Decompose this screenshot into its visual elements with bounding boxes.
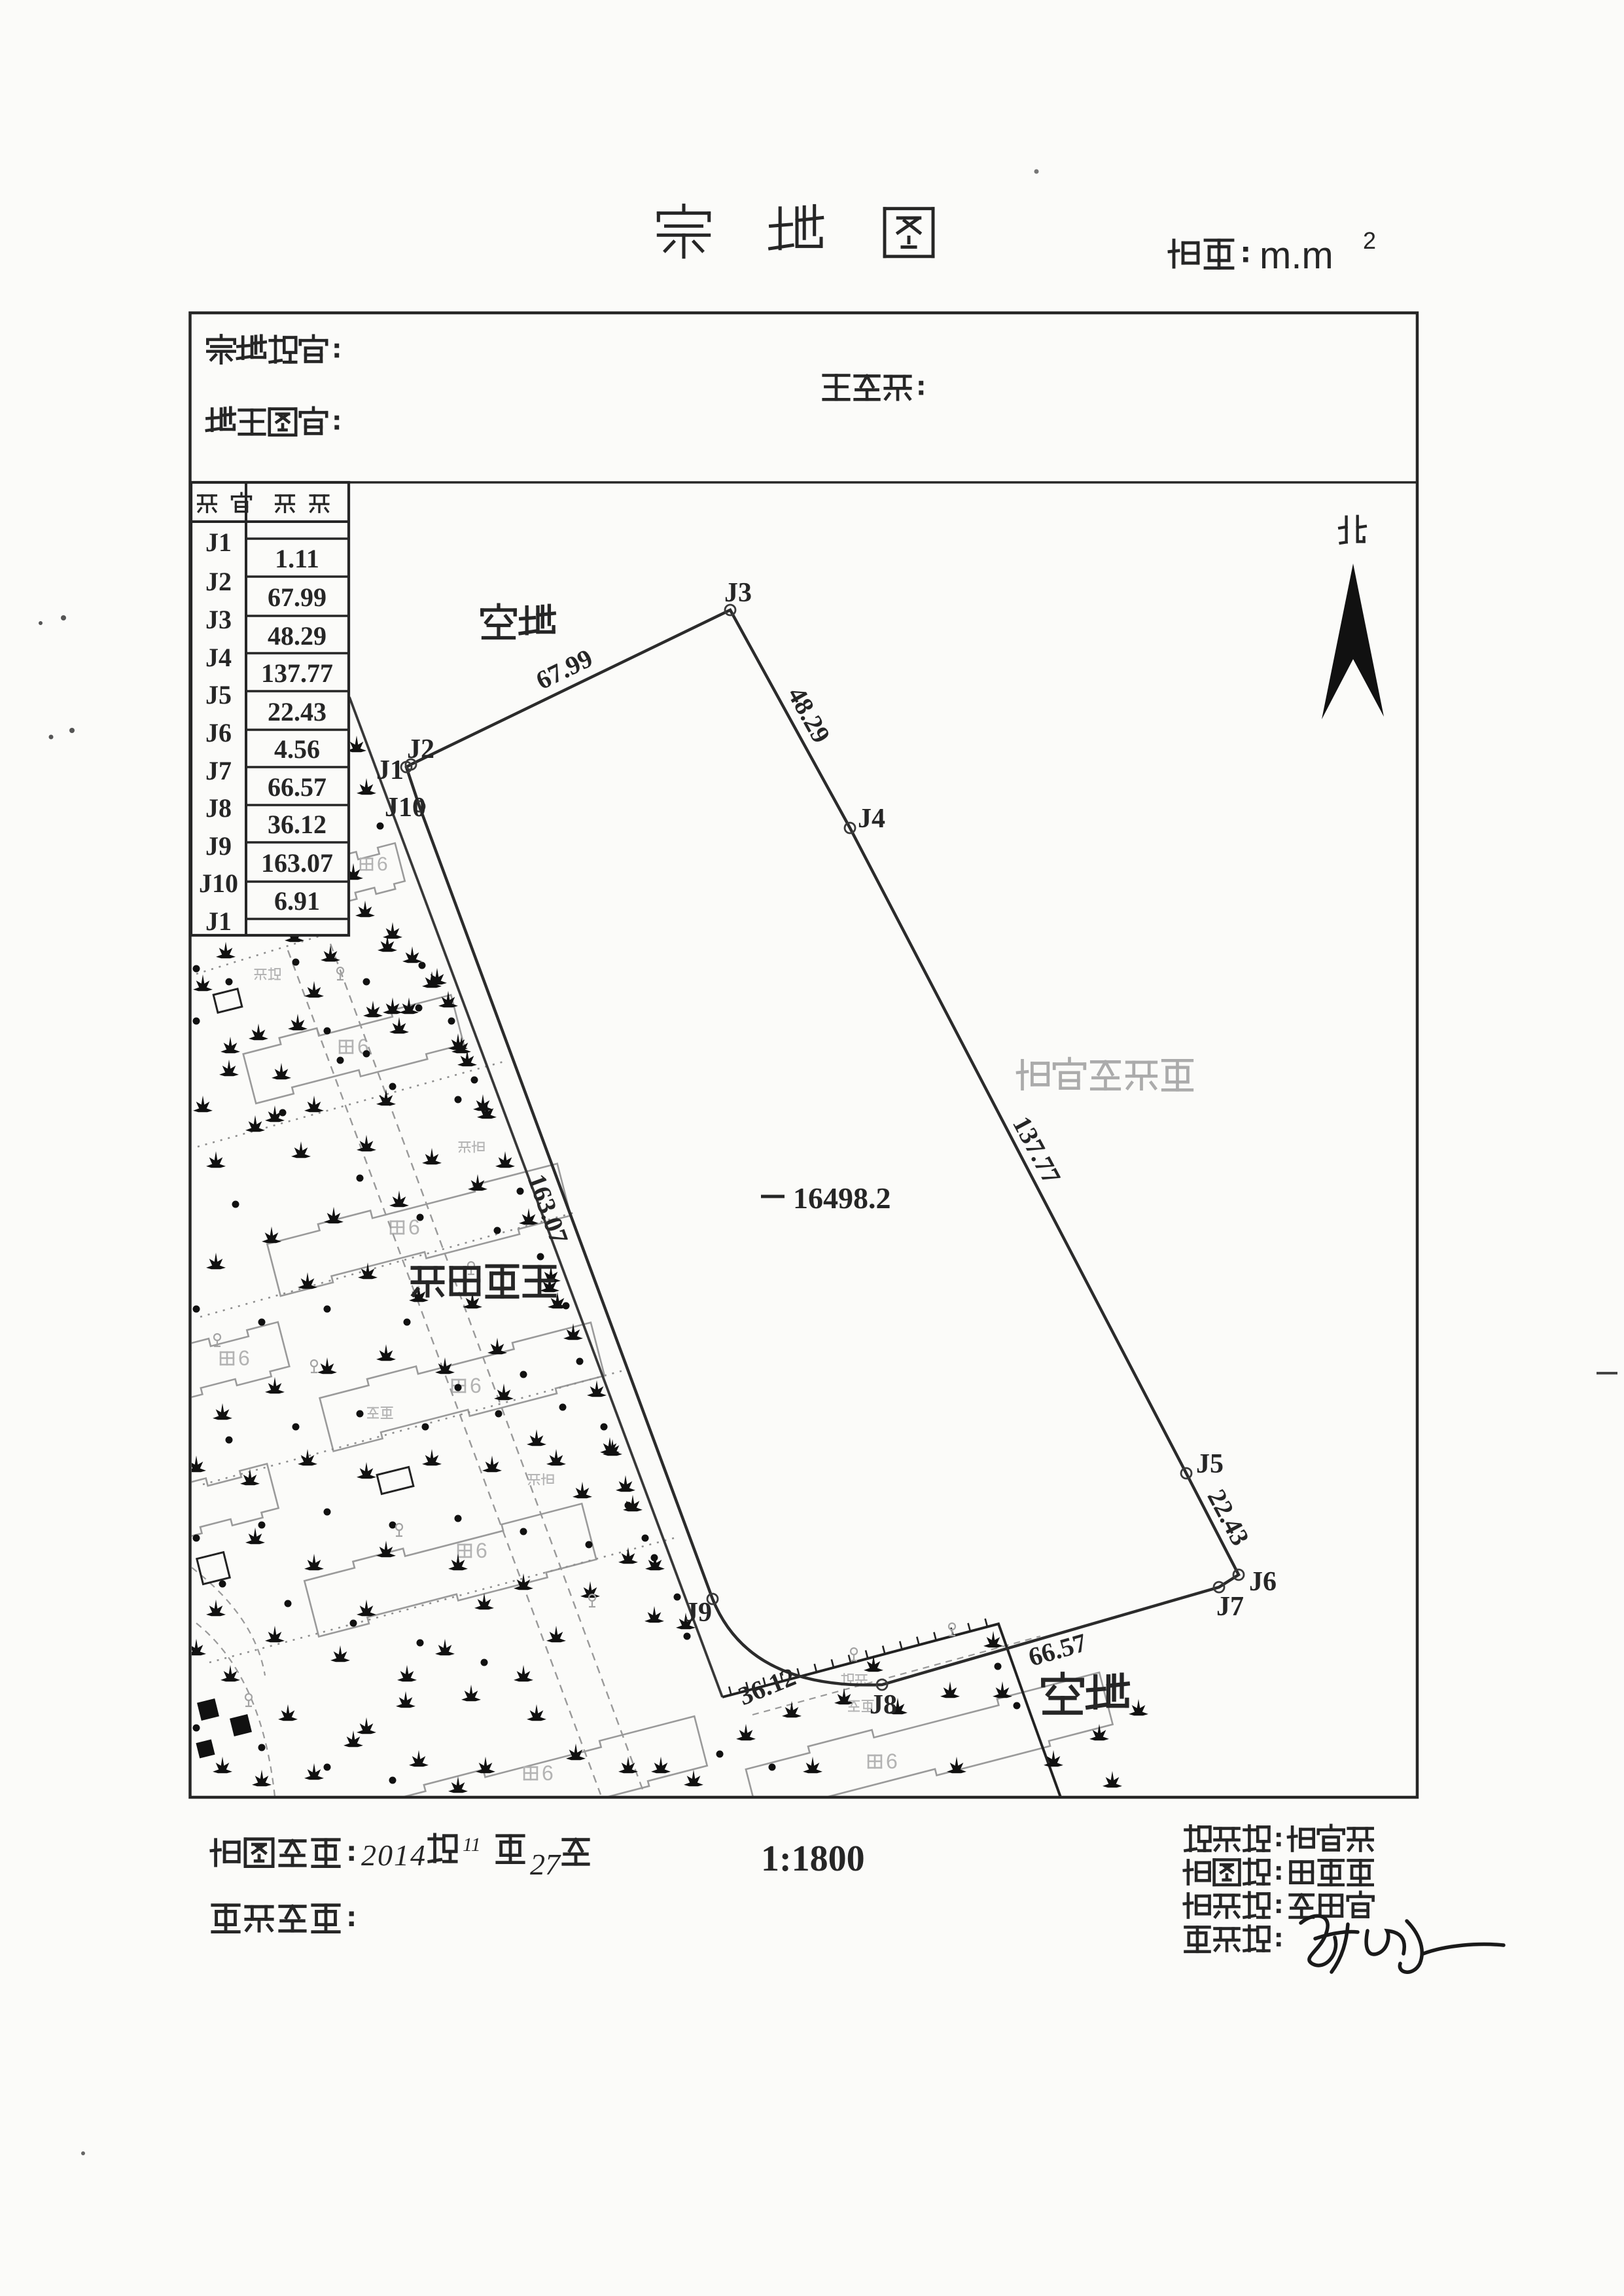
svg-text:6: 6 [476,1539,487,1562]
svg-text:6: 6 [886,1749,898,1773]
svg-text:J8: J8 [205,793,232,823]
svg-text:J1: J1 [205,906,232,936]
svg-text:J3: J3 [724,578,752,608]
svg-text:22.43: 22.43 [268,697,327,726]
svg-text:6: 6 [470,1374,482,1397]
svg-text:36.12: 36.12 [268,810,327,839]
svg-text:J6: J6 [205,718,232,747]
svg-text:J4: J4 [858,804,885,834]
svg-text:11: 11 [463,1834,481,1856]
svg-text:163.07: 163.07 [261,848,333,878]
svg-text:137.77: 137.77 [261,658,333,688]
svg-text:J2: J2 [407,734,434,764]
svg-text:J4: J4 [205,643,232,672]
svg-text:J8: J8 [870,1690,897,1720]
svg-text:2014: 2014 [361,1839,427,1872]
svg-text:J10: J10 [385,793,426,823]
svg-text:66.57: 66.57 [268,772,327,802]
svg-text:J5: J5 [1196,1449,1224,1479]
svg-text:J7: J7 [205,756,232,785]
svg-text:1.11: 1.11 [275,544,319,573]
svg-text:48.29: 48.29 [268,621,327,651]
svg-text:J1: J1 [376,755,404,785]
svg-text:J5: J5 [205,680,232,709]
svg-text:m.m: m.m [1260,234,1333,277]
svg-text:2: 2 [1363,227,1376,254]
svg-text:6: 6 [238,1346,250,1370]
svg-text:6: 6 [542,1761,554,1785]
svg-text:J6: J6 [1249,1567,1277,1597]
svg-text:27: 27 [530,1848,561,1881]
svg-text:67.99: 67.99 [268,583,327,612]
svg-text:J1: J1 [205,528,232,557]
svg-text:J9: J9 [684,1598,712,1628]
svg-text:J3: J3 [205,605,232,634]
svg-text:J2: J2 [205,567,232,596]
svg-text:1:1800: 1:1800 [761,1839,865,1879]
svg-text:J10: J10 [199,869,238,898]
svg-text:16498.2: 16498.2 [793,1181,891,1215]
svg-text:J7: J7 [1216,1592,1244,1622]
svg-text:6: 6 [377,853,388,875]
svg-text:6.91: 6.91 [274,886,320,916]
svg-text:4.56: 4.56 [274,734,320,764]
svg-text:J9: J9 [205,831,232,861]
